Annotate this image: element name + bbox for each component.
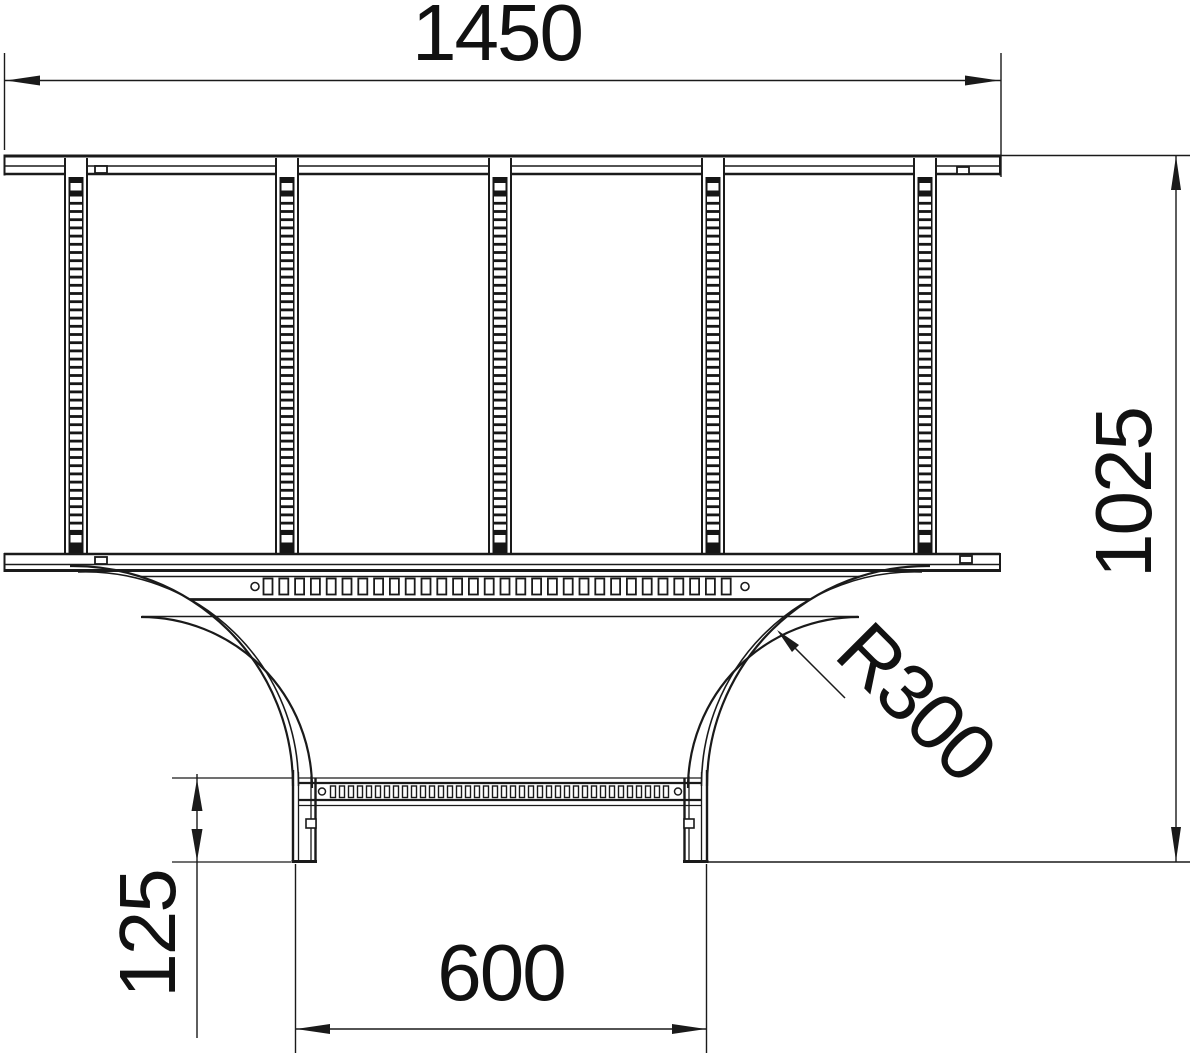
arrowhead-up: [1171, 156, 1181, 190]
branch-connector-square: [684, 819, 694, 828]
branch-opening-rung: [141, 577, 859, 617]
branch-connector-square: [306, 819, 316, 828]
rail-connector-details: [95, 166, 972, 564]
ladder-rung: [489, 158, 511, 554]
connector-square: [960, 556, 972, 563]
ladder-rung: [702, 158, 724, 554]
dimension-rung-offset-label: 125: [108, 870, 188, 997]
branch-rung: [298, 778, 702, 806]
main-run-rungs: [65, 158, 936, 554]
connector-square: [95, 557, 107, 564]
arrowhead-down: [192, 829, 203, 861]
arrowhead-right: [965, 76, 999, 86]
ladder-rung: [65, 158, 87, 554]
main-run-bottom-rail: [4, 553, 1000, 572]
dimension-width-top-label: 1450: [412, 0, 582, 73]
ladder-rung: [914, 158, 936, 554]
arrowhead-right: [672, 1024, 706, 1034]
arrowhead-left: [296, 1024, 330, 1034]
arrowhead-left: [6, 76, 40, 86]
dimension-width-bottom-label: 600: [437, 933, 564, 1013]
arrowhead-down: [1171, 827, 1181, 861]
technical-drawing-page: 1450 1025 R300 125 600: [0, 0, 1200, 1055]
dimension-height-right-label: 1025: [1084, 408, 1164, 578]
ladder-rung: [276, 158, 298, 554]
connector-square: [95, 166, 107, 173]
arrowhead-up: [192, 779, 203, 811]
right-inner-arc: [688, 617, 859, 788]
left-inner-arc: [141, 617, 312, 788]
connector-square: [957, 167, 969, 174]
